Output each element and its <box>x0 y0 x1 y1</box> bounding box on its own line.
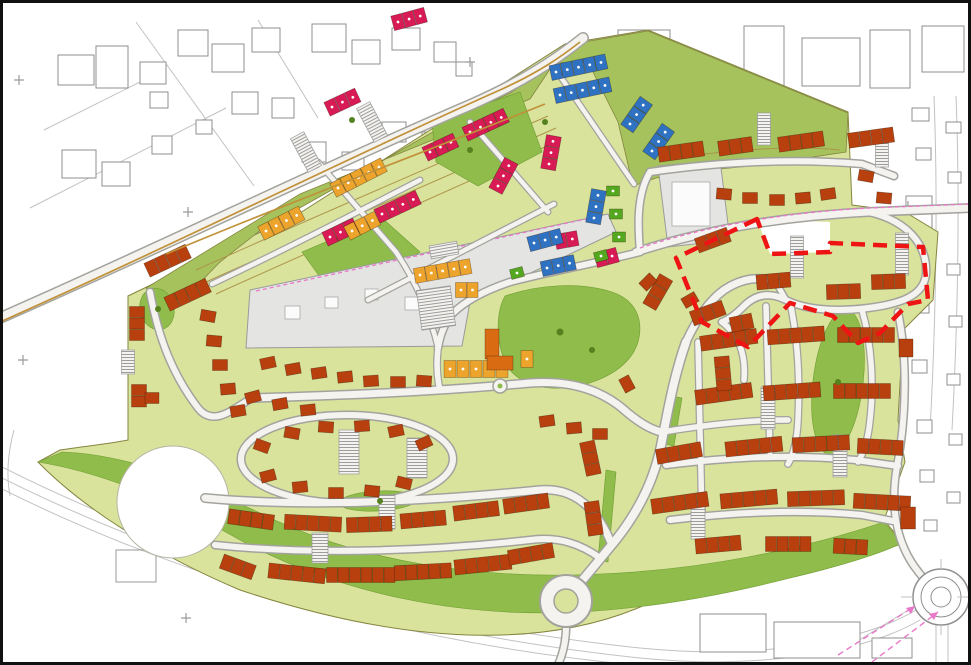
house-row-tc <box>272 397 289 410</box>
house-row-tc <box>416 375 432 387</box>
house-row-tc <box>858 169 875 182</box>
house-row-tc <box>901 507 916 529</box>
house-row-tc <box>300 404 316 417</box>
house-row-tc <box>145 393 159 404</box>
house-row-tc <box>346 516 392 533</box>
house-row-tc <box>714 356 732 391</box>
house-row-tc <box>292 481 308 494</box>
house-row-tc <box>766 537 812 552</box>
parking-court <box>758 113 771 145</box>
house-row-tc <box>363 375 379 387</box>
house-row-tc <box>230 404 247 417</box>
house-row-tc <box>213 360 228 371</box>
house-row-tc <box>220 383 236 395</box>
house-row-tc <box>566 422 582 434</box>
mini-roundabout <box>493 379 507 393</box>
house-row-tc <box>200 309 217 322</box>
house-row-tc <box>285 362 302 375</box>
house-row-tc <box>539 415 555 428</box>
house-row-tc <box>826 284 861 300</box>
house-row-tc <box>820 188 836 201</box>
house-row-or <box>456 283 479 298</box>
house-row-cr <box>391 7 428 30</box>
house-row-tc <box>743 193 758 204</box>
house-row-tc <box>318 421 334 433</box>
house-row-tc <box>756 272 791 290</box>
house-row-tc <box>284 514 342 532</box>
house-row-tc <box>857 438 903 455</box>
house-row-cr <box>324 88 361 116</box>
house-row-gr <box>613 232 626 242</box>
house-row-do <box>485 329 499 359</box>
parking-court <box>896 233 909 275</box>
house-row-tc <box>716 188 732 200</box>
site-masterplan <box>0 0 971 665</box>
house-row-tc <box>327 568 396 583</box>
site-plan-svg <box>0 0 971 665</box>
parking-court <box>312 533 328 563</box>
house-row-tc <box>354 420 370 432</box>
house-row-tc <box>593 429 608 440</box>
parking-court <box>791 236 804 278</box>
house-row-tc <box>795 192 811 204</box>
house-row-tc <box>394 563 452 581</box>
roundabout-southeast <box>901 559 969 635</box>
house-row-tc <box>329 488 344 499</box>
house-row-tc <box>364 485 380 498</box>
house-row-tc <box>787 490 844 507</box>
house-row-tc <box>337 371 353 384</box>
house-row-tc <box>876 192 892 204</box>
house-row-tc <box>792 435 850 453</box>
house-row-tc <box>284 426 301 439</box>
house-row-gr <box>607 186 620 196</box>
house-row-tc <box>770 195 785 206</box>
house-row-tc <box>899 339 913 357</box>
parking-court <box>122 350 135 374</box>
roundabout-main <box>540 575 592 627</box>
parking-court <box>339 430 359 474</box>
house-row-tc <box>833 538 868 555</box>
house-row-tc <box>871 274 906 290</box>
house-row-tc <box>130 307 145 341</box>
house-row-tc <box>132 385 147 408</box>
house-row-tc <box>311 367 327 380</box>
parking-court <box>416 286 455 330</box>
house-row-tc <box>206 335 222 347</box>
house-row-tc <box>834 384 891 399</box>
house-row-gr <box>610 209 623 219</box>
magenta-arrowhead-1 <box>906 606 915 614</box>
house-row-do <box>487 356 513 370</box>
house-row-or <box>521 351 533 368</box>
house-row-tc <box>391 377 406 388</box>
